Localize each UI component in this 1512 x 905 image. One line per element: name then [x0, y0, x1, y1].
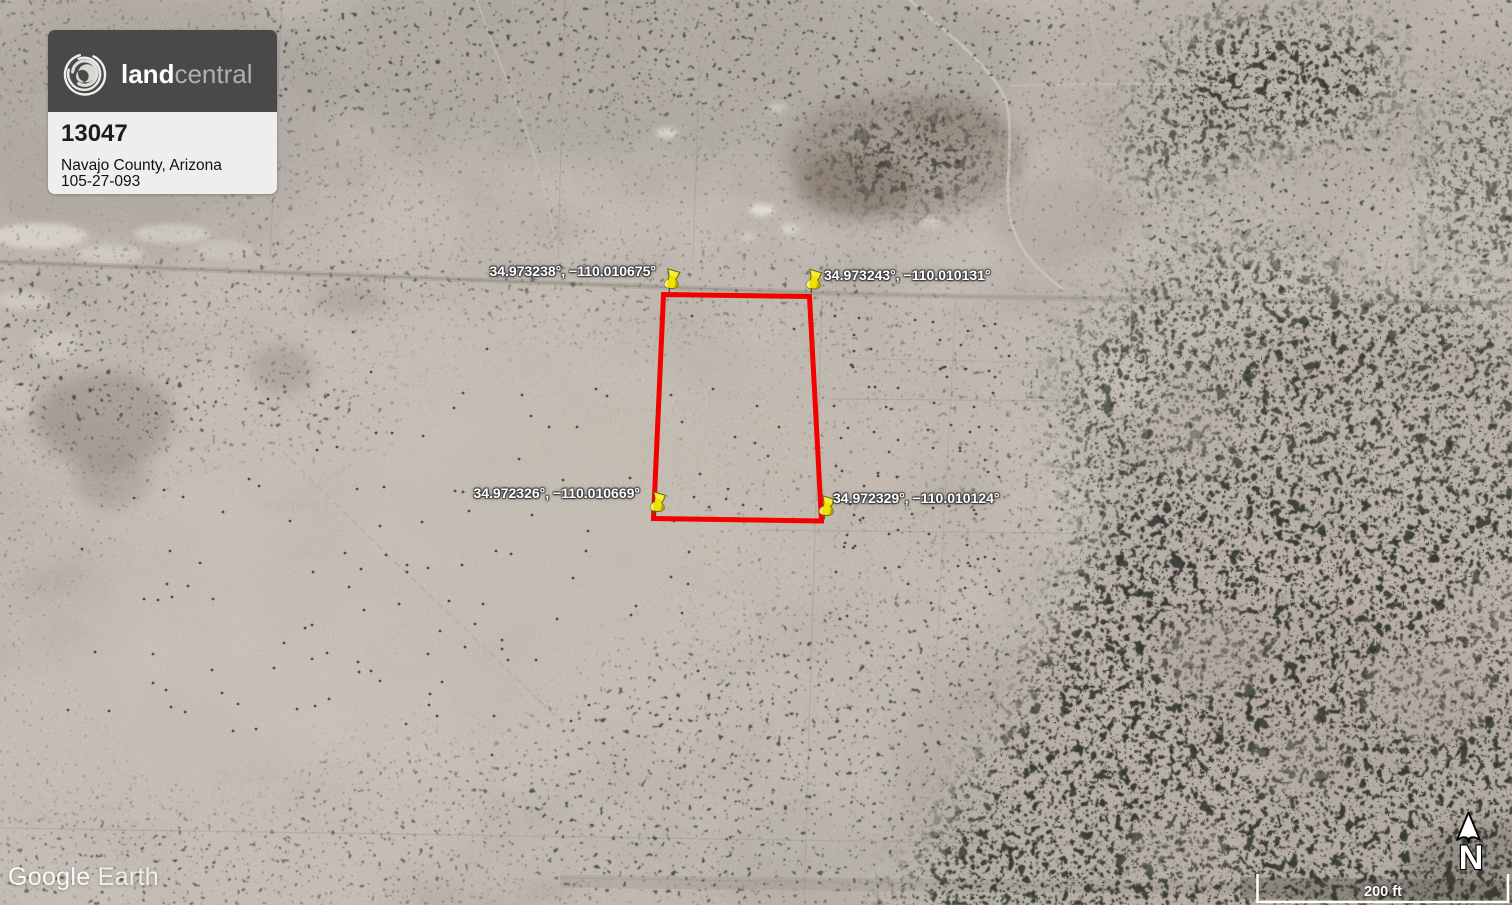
- svg-text:200 ft: 200 ft: [1364, 884, 1402, 900]
